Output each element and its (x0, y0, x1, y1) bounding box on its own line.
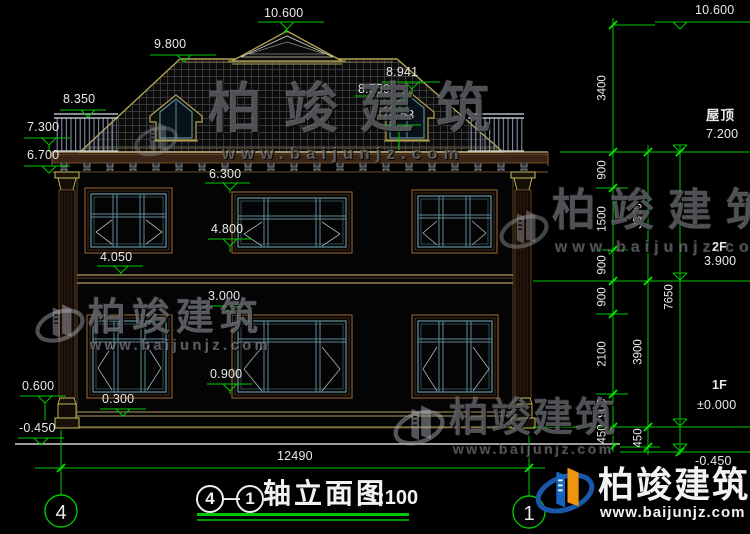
level-label: 6.300 (209, 168, 241, 181)
level-label: -0.450 (19, 422, 56, 435)
watermark-brand-text: 柏竣建筑 (208, 82, 512, 136)
total-height-dimension: 7650 (664, 284, 676, 310)
baijun-logo-icon (498, 203, 550, 255)
watermark-site-text: www.baijunjz.com (90, 339, 271, 354)
baijun-logo-icon (534, 459, 596, 521)
level-label: 0.900 (210, 368, 242, 381)
level-label: 0.300 (102, 393, 134, 406)
level-label: 7.300 (27, 121, 59, 134)
watermark-brand-text: 柏竣建筑 (552, 189, 750, 233)
chain-dim: 3900 (633, 339, 645, 365)
watermark-site-text: www.baijunjz.com (222, 145, 465, 162)
cad-elevation-canvas: 10.600 9.800 8.350 7.300 6.700 8.941 8.5… (0, 0, 750, 534)
title-axis-from-circle: 4 (196, 485, 224, 513)
baijun-logo-icon (34, 297, 86, 349)
gable-pediment (228, 31, 346, 64)
brand-site-url: www.baijunjz.com (600, 505, 745, 520)
drawing-scale: 1:100 (367, 488, 418, 508)
level-label: 9.800 (154, 38, 186, 51)
title-underline-thin (197, 519, 409, 521)
level-label: 7.200 (706, 128, 738, 141)
title-underline-thick (197, 513, 409, 516)
title-axis-to: 1 (245, 489, 254, 509)
brand-logotype: 柏竣建筑 (598, 467, 750, 503)
chain-dim: 450 (633, 428, 645, 447)
baijun-logo-icon (392, 398, 446, 452)
watermark-brand-text: 柏竣建筑 (88, 299, 264, 337)
title-axis-to-circle: 1 (236, 485, 264, 513)
chain-dim: 3400 (597, 75, 609, 101)
level-label: 10.600 (264, 7, 303, 20)
watermark-brand-text: 柏竣建筑 (449, 398, 617, 438)
railing-left (54, 114, 118, 151)
level-label: 6.700 (27, 149, 59, 162)
chain-dim: 900 (597, 287, 609, 306)
watermark-site-text: www.baijunjz.com (555, 240, 750, 256)
level-label: 8.350 (63, 93, 95, 106)
overall-width-dimension: 12490 (277, 450, 313, 463)
chain-dim: 900 (597, 255, 609, 274)
axis-bubble-4: 4 (45, 503, 77, 523)
level-label: 0.600 (22, 380, 54, 393)
level-label: 10.600 (695, 4, 734, 17)
floor-1-label: 1F (712, 379, 727, 392)
level-label: ±0.000 (697, 399, 736, 412)
chain-dim: 900 (597, 160, 609, 179)
level-label: 8.941 (386, 66, 418, 79)
level-label: 4.800 (211, 223, 243, 236)
roof-level-label: 屋顶 (706, 109, 735, 123)
baijun-logo-icon (133, 116, 179, 162)
title-axis-from: 4 (205, 489, 214, 509)
chain-dim: 2100 (597, 341, 609, 367)
level-label: 3.900 (704, 255, 736, 268)
level-label: 4.050 (100, 251, 132, 264)
watermark-site-text: www.baijunjz.com (453, 442, 614, 456)
